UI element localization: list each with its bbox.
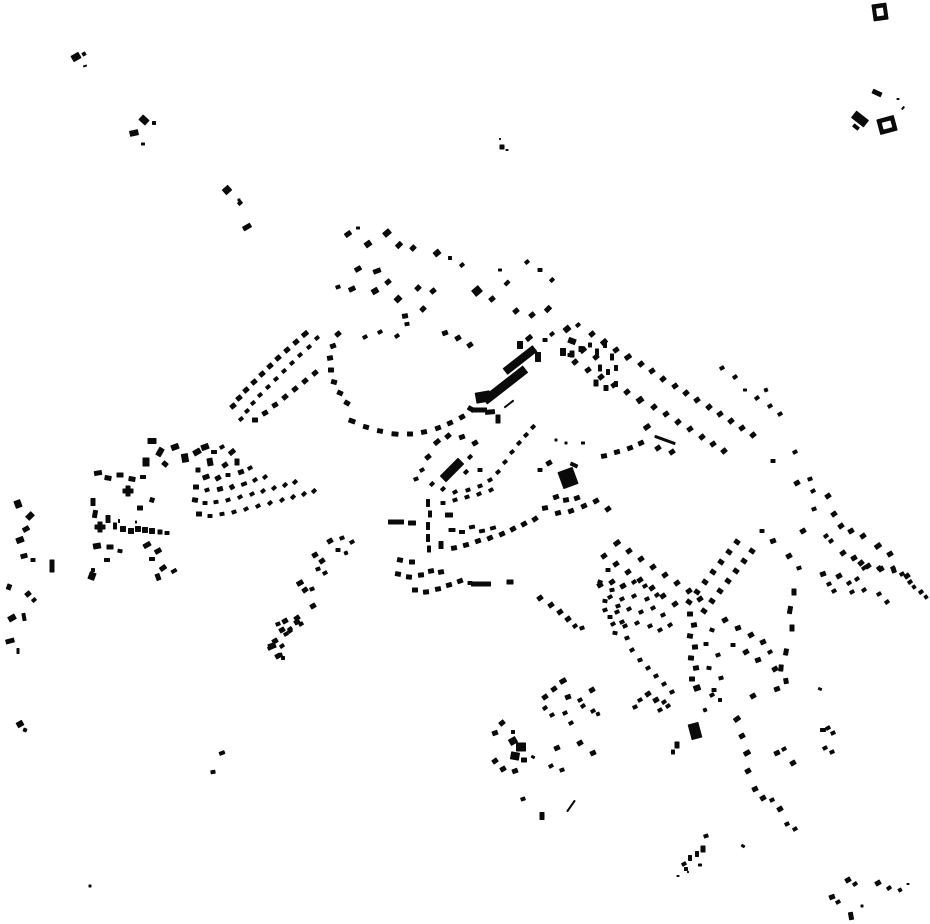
building-footprint xyxy=(149,557,155,561)
building-footprint xyxy=(226,473,231,477)
building-footprint xyxy=(297,352,303,358)
building-footprint xyxy=(662,410,670,418)
building-footprint xyxy=(459,530,465,534)
building-footprint xyxy=(496,415,501,424)
building-footprint xyxy=(155,447,165,458)
building-footprint xyxy=(149,497,155,503)
building-footprint xyxy=(438,569,445,575)
building-footprint xyxy=(104,475,112,481)
building-footprint xyxy=(553,744,561,751)
building-footprint xyxy=(871,89,882,98)
building-footprint xyxy=(645,665,651,671)
building-footprint xyxy=(208,514,213,518)
building-footprint xyxy=(433,438,442,446)
building-footprint xyxy=(384,278,392,286)
building-footprint xyxy=(573,495,580,502)
building-footprint xyxy=(531,515,539,523)
building-footprint xyxy=(923,594,929,600)
building-footprint xyxy=(329,343,336,350)
building-footprint xyxy=(835,899,841,905)
building-footprint xyxy=(471,582,491,587)
building-footprint xyxy=(572,623,578,629)
building-footprint xyxy=(799,527,807,534)
building-footprint xyxy=(91,568,95,572)
building-footprint xyxy=(828,538,834,544)
building-footprint xyxy=(604,505,612,513)
building-footprint xyxy=(161,460,169,468)
building-footprint xyxy=(424,453,432,461)
building-footprint xyxy=(281,393,289,401)
building-footprint xyxy=(542,505,549,511)
building-footprint xyxy=(562,710,568,716)
building-footprint xyxy=(252,477,258,483)
building-footprint xyxy=(588,686,596,693)
building-footprint xyxy=(886,550,894,557)
building-footprint xyxy=(235,459,240,466)
building-footprint xyxy=(861,587,867,593)
building-footprint xyxy=(301,377,309,385)
building-footprint xyxy=(441,330,448,337)
building-footprint xyxy=(113,523,117,530)
building-footprint xyxy=(661,571,669,579)
building-footprint xyxy=(562,324,571,333)
building-footprint xyxy=(240,481,247,487)
building-footprint xyxy=(391,431,398,437)
building-footprint xyxy=(743,389,747,392)
building-footprint xyxy=(306,344,312,350)
building-footprint xyxy=(499,765,507,772)
building-footprint xyxy=(128,476,136,482)
building-footprint xyxy=(884,599,890,605)
building-footprint xyxy=(309,602,317,609)
building-footprint xyxy=(857,559,865,567)
building-footprint xyxy=(811,506,817,511)
building-footprint xyxy=(488,295,496,303)
building-footprint xyxy=(523,432,529,438)
building-footprint xyxy=(70,52,81,63)
building-footprint xyxy=(820,728,826,732)
building-footprint xyxy=(435,586,442,592)
building-footprint xyxy=(464,494,470,499)
building-footprint xyxy=(568,720,574,726)
building-footprint xyxy=(609,588,615,593)
building-footprint xyxy=(462,542,469,548)
building-footprint xyxy=(281,656,285,660)
building-footprint xyxy=(229,484,236,491)
building-footprint xyxy=(142,541,151,549)
building-footprint xyxy=(343,550,348,555)
building-footprint xyxy=(247,465,253,471)
building-footprint xyxy=(724,577,732,585)
building-footprint xyxy=(377,329,383,335)
building-footprint xyxy=(598,365,602,372)
building-footprint xyxy=(356,227,360,230)
building-footprint xyxy=(637,697,643,703)
building-footprint xyxy=(674,418,682,426)
building-footprint xyxy=(785,552,793,559)
building-footprint xyxy=(211,450,217,454)
building-footprint xyxy=(140,475,146,479)
building-footprint xyxy=(874,542,883,550)
building-footprint xyxy=(631,593,637,599)
building-footprint xyxy=(196,468,201,473)
building-footprint xyxy=(521,758,527,763)
building-footprint xyxy=(106,515,111,523)
building-footprint xyxy=(117,473,124,478)
building-footprint xyxy=(231,509,237,514)
building-footprint xyxy=(631,579,637,585)
building-footprint xyxy=(452,489,458,495)
building-footprint xyxy=(291,385,299,393)
building-footprint xyxy=(520,796,526,801)
building-footprint xyxy=(685,598,693,606)
building-footprint xyxy=(509,449,515,455)
building-footprint xyxy=(281,617,289,624)
building-footprint xyxy=(429,481,435,487)
building-footprint xyxy=(698,433,706,441)
building-footprint xyxy=(13,499,22,509)
building-footprint xyxy=(748,547,756,555)
building-footprint xyxy=(542,705,548,711)
building-footprint xyxy=(717,558,725,566)
building-footprint xyxy=(807,476,813,481)
building-footprint xyxy=(292,338,300,346)
building-footprint xyxy=(564,615,572,623)
building-footprint xyxy=(624,353,633,361)
building-footprint xyxy=(625,547,633,555)
building-footprint xyxy=(556,608,564,616)
building-footprint xyxy=(434,425,441,432)
building-footprint xyxy=(595,711,600,716)
building-footprint xyxy=(296,579,305,587)
building-footprint xyxy=(643,423,652,431)
building-footprint xyxy=(778,664,784,671)
building-footprint xyxy=(544,305,552,313)
building-footprint xyxy=(465,487,471,492)
building-footprint xyxy=(451,545,458,551)
building-footprint xyxy=(654,592,660,598)
building-footprint xyxy=(471,285,483,297)
building-footprint xyxy=(823,533,829,539)
building-footprint xyxy=(592,497,600,504)
building-footprint xyxy=(759,638,767,645)
building-footprint xyxy=(615,603,621,608)
building-footprint xyxy=(749,692,757,699)
building-footprint xyxy=(792,449,798,455)
building-footprint xyxy=(644,690,652,698)
building-footprint xyxy=(538,268,543,272)
building-footprint xyxy=(281,368,287,374)
building-footprint xyxy=(649,563,657,571)
building-footprint xyxy=(819,571,826,578)
building-footprint xyxy=(395,571,402,577)
building-footprint xyxy=(835,572,843,579)
building-footprint xyxy=(282,482,288,488)
building-footprint xyxy=(467,454,473,460)
building-footprint xyxy=(727,417,735,425)
building-footprint xyxy=(273,376,279,382)
building-footprint xyxy=(318,557,326,565)
building-footprint xyxy=(222,185,233,196)
building-footprint xyxy=(458,434,465,441)
building-footprint xyxy=(414,284,422,292)
building-footprint xyxy=(120,526,126,532)
building-footprint xyxy=(637,657,643,662)
building-footprint xyxy=(648,367,656,375)
building-footprint xyxy=(377,428,384,434)
building-footprint xyxy=(644,596,650,602)
building-footprint xyxy=(423,589,429,595)
building-footprint xyxy=(409,560,415,565)
building-footprint xyxy=(886,885,892,891)
building-footprint xyxy=(688,855,692,861)
building-footprint xyxy=(783,678,789,685)
building-footprint xyxy=(118,519,120,523)
building-footprint xyxy=(336,389,344,396)
building-footprint xyxy=(538,468,543,472)
building-footprint xyxy=(763,387,768,392)
building-footprint xyxy=(444,432,452,440)
building-footprint xyxy=(449,528,456,532)
building-footprint xyxy=(500,145,505,150)
building-footprint xyxy=(94,470,103,476)
building-footprint xyxy=(576,739,584,746)
building-footprint xyxy=(565,442,568,445)
building-footprint xyxy=(580,502,588,509)
building-footprint xyxy=(741,844,746,849)
building-footprint xyxy=(413,476,419,481)
building-footprint xyxy=(440,458,465,483)
building-footprint xyxy=(343,399,351,406)
building-footprint xyxy=(550,685,558,693)
building-footprint xyxy=(608,615,613,619)
building-footprint xyxy=(907,883,910,885)
building-footprint xyxy=(844,876,852,883)
building-footprint xyxy=(657,627,663,633)
building-footprint xyxy=(446,419,454,426)
building-footprint xyxy=(330,379,337,385)
building-footprint xyxy=(441,501,446,505)
building-footprint xyxy=(567,337,577,345)
building-footprint xyxy=(181,453,189,463)
building-footprint xyxy=(301,586,309,594)
building-footprint xyxy=(206,458,213,467)
building-footprint xyxy=(771,459,776,463)
building-footprint xyxy=(747,631,755,638)
building-footprint xyxy=(613,539,622,547)
building-footprint xyxy=(709,568,717,576)
building-footprint xyxy=(769,797,775,803)
building-footprint xyxy=(348,417,356,424)
building-footprint xyxy=(636,576,644,584)
building-footprint xyxy=(634,620,640,626)
building-footprint xyxy=(394,333,400,339)
building-footprint xyxy=(22,525,31,533)
building-footprint xyxy=(709,440,717,448)
building-footprint xyxy=(292,479,298,485)
building-footprint xyxy=(459,262,465,268)
building-footprint xyxy=(548,763,554,769)
building-footprint xyxy=(213,500,219,505)
building-footprint xyxy=(258,370,266,378)
building-footprint xyxy=(682,389,690,397)
building-footprint xyxy=(669,689,675,695)
building-footprint xyxy=(348,285,356,292)
building-footprint xyxy=(622,623,628,629)
building-footprint xyxy=(654,444,662,452)
building-footprint xyxy=(404,322,410,327)
building-footprint xyxy=(468,581,473,585)
building-footprint xyxy=(229,402,237,410)
building-footprint xyxy=(154,573,161,581)
building-footprint xyxy=(204,487,210,492)
building-footprint xyxy=(619,582,627,589)
building-footprint xyxy=(588,343,592,348)
building-footprint xyxy=(322,570,328,576)
building-footprint xyxy=(24,590,32,598)
building-footprint xyxy=(525,334,534,342)
building-footprint xyxy=(504,400,515,409)
building-footprint xyxy=(709,627,715,632)
map-canvas xyxy=(0,0,930,924)
building-footprint xyxy=(589,749,597,756)
building-footprint xyxy=(716,410,724,418)
building-footprint xyxy=(787,606,793,615)
building-footprint xyxy=(773,749,781,756)
building-footprint xyxy=(608,578,616,586)
building-footprint xyxy=(335,284,341,289)
building-footprint xyxy=(691,622,698,628)
building-footprint xyxy=(454,334,462,341)
building-footprint xyxy=(138,114,149,125)
building-footprint xyxy=(759,794,767,801)
building-footprint xyxy=(98,522,103,533)
building-footprint xyxy=(684,867,688,871)
building-footprint xyxy=(602,599,608,604)
building-footprint xyxy=(458,413,466,420)
building-footprint xyxy=(829,749,835,755)
building-footprint xyxy=(311,369,319,377)
building-footprint xyxy=(654,435,676,445)
building-footprint xyxy=(612,346,620,354)
building-footprint xyxy=(789,759,797,766)
building-footprint xyxy=(552,494,559,501)
building-footprint xyxy=(314,335,320,341)
building-footprint xyxy=(839,549,847,557)
building-footprint xyxy=(426,522,430,530)
building-footprint xyxy=(581,442,585,445)
building-footprint xyxy=(771,665,779,672)
building-footprint xyxy=(439,541,444,549)
building-footprint xyxy=(725,548,733,556)
building-footprint xyxy=(536,594,544,602)
building-footprint xyxy=(665,703,671,709)
building-footprint xyxy=(602,607,608,612)
building-footprint xyxy=(419,467,425,473)
building-footprint xyxy=(196,512,202,517)
building-footprint xyxy=(520,520,528,527)
building-footprint xyxy=(31,558,36,562)
building-footprint xyxy=(260,488,266,494)
building-footprint xyxy=(474,538,481,545)
building-footprint xyxy=(657,707,663,713)
building-footprint xyxy=(793,479,801,486)
building-footprint xyxy=(619,619,625,625)
building-footprint xyxy=(225,497,231,502)
building-footprint xyxy=(749,431,757,439)
building-footprint xyxy=(117,549,123,554)
building-footprint xyxy=(675,742,680,749)
building-footprint xyxy=(228,448,237,456)
building-footprint xyxy=(673,579,681,587)
building-footprint xyxy=(715,652,721,657)
building-footprint xyxy=(202,473,210,480)
building-footprint xyxy=(271,401,279,408)
building-footprint xyxy=(686,425,694,433)
building-footprint xyxy=(629,647,635,653)
building-footprint xyxy=(700,607,708,615)
building-footprint xyxy=(427,546,431,553)
building-footprint xyxy=(262,474,268,480)
building-footprint xyxy=(580,703,586,709)
building-footprint xyxy=(495,469,501,475)
building-footprint xyxy=(511,768,518,775)
building-footprint xyxy=(509,525,517,532)
building-footprint xyxy=(584,366,592,374)
building-courtyard-hole xyxy=(876,8,884,17)
building-footprint xyxy=(301,330,310,338)
building-footprint xyxy=(590,708,596,714)
building-footprint xyxy=(87,571,96,581)
building-footprint xyxy=(681,861,687,867)
building-footprint xyxy=(579,625,585,630)
building-footprint xyxy=(511,730,515,734)
building-footprint xyxy=(393,294,402,303)
building-footprint xyxy=(17,648,20,654)
building-footprint xyxy=(92,510,98,519)
building-footprint xyxy=(466,341,474,349)
building-footprint xyxy=(698,864,702,867)
building-footprint xyxy=(612,631,618,636)
building-footprint xyxy=(250,400,256,406)
building-footprint xyxy=(693,665,700,671)
building-footprint xyxy=(769,538,776,545)
building-footprint xyxy=(687,633,694,639)
building-footprint xyxy=(632,704,638,710)
building-footprint xyxy=(557,467,578,489)
building-footprint xyxy=(135,521,137,524)
building-footprint xyxy=(754,395,760,401)
building-footprint xyxy=(485,409,495,415)
building-footprint xyxy=(626,606,632,612)
building-footprint xyxy=(517,341,523,349)
building-footprint xyxy=(668,448,676,456)
building-footprint xyxy=(440,486,446,492)
building-footprint xyxy=(81,51,86,56)
building-footprint xyxy=(219,512,225,517)
building-footprint xyxy=(193,485,199,490)
building-footprint xyxy=(6,583,13,590)
building-footprint xyxy=(543,338,548,342)
building-footprint xyxy=(705,403,713,411)
building-footprint xyxy=(792,589,797,596)
building-footprint xyxy=(874,879,882,886)
building-footprint xyxy=(149,528,155,534)
building-footprint xyxy=(687,612,693,617)
building-footprint xyxy=(566,800,576,813)
building-footprint xyxy=(311,551,319,558)
building-footprint xyxy=(859,532,867,540)
